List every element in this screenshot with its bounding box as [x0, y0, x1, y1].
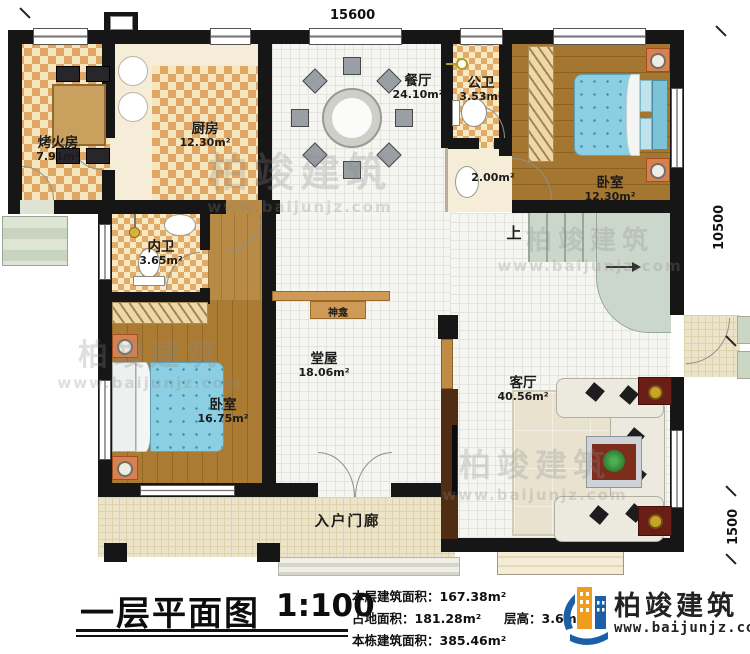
window-kaohuofang-top — [33, 28, 88, 45]
title-underline-2 — [76, 635, 348, 637]
window-dining-top — [309, 28, 402, 45]
dim-tick-5 — [725, 553, 736, 564]
label-kaohuofang: 烤火房7.91m² — [8, 136, 108, 163]
bed-left-pillows — [112, 362, 136, 452]
label-stairs-up: 上 — [503, 225, 525, 242]
hall-column — [438, 315, 458, 339]
label-kitchen: 厨房12.30m² — [155, 122, 255, 149]
dining-chair-3 — [395, 109, 413, 127]
toilet-tank-public — [452, 100, 460, 126]
stat-total-area: 本栋建筑面积：385.46m² — [352, 630, 506, 649]
floor-plan-sheet: 柏竣建筑 www.baijunjz.com 柏竣建筑 www.baijunjz.… — [0, 0, 750, 654]
dim-tick-1 — [19, 7, 30, 18]
gap-kaohuofang-exit — [20, 200, 54, 214]
logo-building-icon — [556, 582, 612, 652]
kaohuofang-chair-2 — [86, 66, 110, 82]
bed-top-pillow-1 — [640, 80, 652, 112]
washroom-left-edge — [445, 148, 448, 212]
window-bedroom-left-bottom — [140, 485, 235, 496]
shrine-shelf — [272, 291, 390, 301]
innerbath-sink — [164, 214, 196, 236]
wall-publicbath-washroom-a — [445, 138, 479, 149]
shower-arm — [446, 63, 457, 65]
window-living-right — [671, 430, 683, 508]
dim-right-porch: 1500 — [726, 509, 741, 545]
wardrobe-bedroom-left — [112, 302, 208, 324]
kaohuofang-chair-1 — [56, 66, 80, 82]
gap-kitchen-corridor — [226, 200, 262, 214]
bed-top-sheet — [626, 74, 640, 156]
dresser-bedroom-top — [652, 80, 668, 150]
window-bedroom-left-left — [99, 380, 111, 460]
side-table-bottom — [638, 506, 672, 536]
logo-website: www.baijunjz.com — [614, 620, 750, 636]
nightstand-left-1 — [112, 334, 138, 358]
shower-head-icon — [456, 58, 468, 70]
side-table-top — [638, 377, 672, 405]
window-bedroom-top-top — [553, 28, 646, 45]
stat-floor-area: 本层建筑面积：167.38m² — [352, 586, 506, 605]
wall-bedroom-left-right — [262, 312, 276, 497]
title-underline-1 — [76, 629, 348, 632]
innerbath-lamp — [129, 227, 140, 238]
chimney-flue — [110, 16, 133, 30]
kitchen-sink — [118, 56, 148, 86]
dim-tick-4 — [725, 485, 736, 496]
dining-chair-7 — [291, 109, 309, 127]
wall-hall-bottom-a — [288, 483, 318, 497]
stair-arrow-head — [632, 262, 641, 272]
bay-window — [497, 548, 624, 575]
dining-chair-1 — [343, 57, 361, 75]
kitchen-stove — [118, 92, 148, 122]
dim-top: 15600 — [330, 8, 375, 23]
window-innerbath-left — [99, 224, 111, 280]
left-steps — [2, 216, 68, 266]
wall-left-upper — [8, 30, 22, 214]
nightstand-left-2 — [112, 456, 138, 480]
innerbath-lamp-cord — [134, 214, 136, 228]
porch-column-left — [104, 543, 127, 562]
company-logo: 柏竣建筑 www.baijunjz.com — [556, 582, 746, 650]
bed-top-pillow-2 — [640, 118, 652, 150]
label-dining: 餐厅24.10m² — [378, 74, 458, 101]
label-shrine: 神龛 — [310, 301, 366, 319]
window-kitchen-top — [210, 28, 251, 45]
window-publicbath-top — [460, 28, 503, 45]
dim-tick-2 — [715, 25, 726, 36]
logo-name: 柏竣建筑 — [614, 584, 738, 623]
wall-right-upper — [670, 30, 684, 315]
dining-table-top — [332, 98, 372, 138]
page-title: 一层平面图 — [80, 586, 260, 635]
dining-chair-5 — [343, 161, 361, 179]
porch-column-mid — [257, 543, 280, 562]
dim-right-height: 10500 — [712, 205, 727, 250]
tv-screen — [452, 425, 457, 495]
wall-innerbath-corridor-a — [200, 212, 210, 250]
nightstand-top-1 — [646, 48, 670, 72]
bed-top-mattress — [574, 74, 632, 156]
closet-bedroom-top — [528, 46, 554, 162]
label-inner-bath: 内卫3.65m² — [130, 240, 192, 267]
entry-steps — [278, 557, 460, 576]
label-hall: 堂屋18.06m² — [288, 352, 360, 379]
label-washroom: 2.00m² — [468, 172, 518, 184]
wall-kaohuofang-kitchen-b — [102, 170, 115, 200]
wall-publicbath-washroom-b — [494, 138, 512, 149]
side-porch-slab-1 — [737, 316, 750, 344]
label-bedroom-top: 卧室12.30m² — [570, 176, 650, 203]
side-porch-slab-2 — [737, 351, 750, 379]
label-public-bath: 公卫3.53m² — [452, 76, 510, 103]
label-living: 客厅40.56m² — [486, 376, 560, 403]
window-bedroom-top-right — [671, 88, 683, 168]
wall-kitchen-dining — [258, 44, 272, 200]
tv-wall-upper — [441, 339, 453, 389]
toilet-base-inner — [133, 276, 165, 286]
label-bedroom-left: 卧室16.75m² — [185, 398, 261, 425]
stat-footprint: 占地面积：181.28m² 层高：3.6m — [352, 608, 577, 627]
label-entry-porch: 入户门廊 — [275, 514, 420, 530]
coffee-table-plant — [603, 450, 625, 472]
